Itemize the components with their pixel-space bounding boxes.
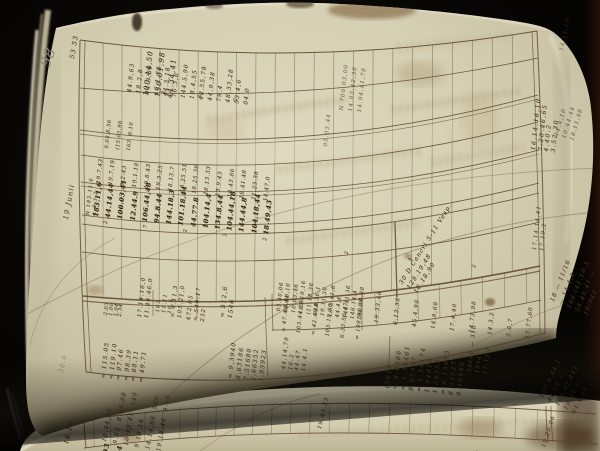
- manuscript-photo: 98 53 53 19 Junii 38.6 N 183.11,6 ± 4.3,…: [0, 0, 600, 451]
- main-page: [0, 0, 600, 451]
- ink-blot: [132, 13, 142, 31]
- manuscript-art: [0, 0, 600, 451]
